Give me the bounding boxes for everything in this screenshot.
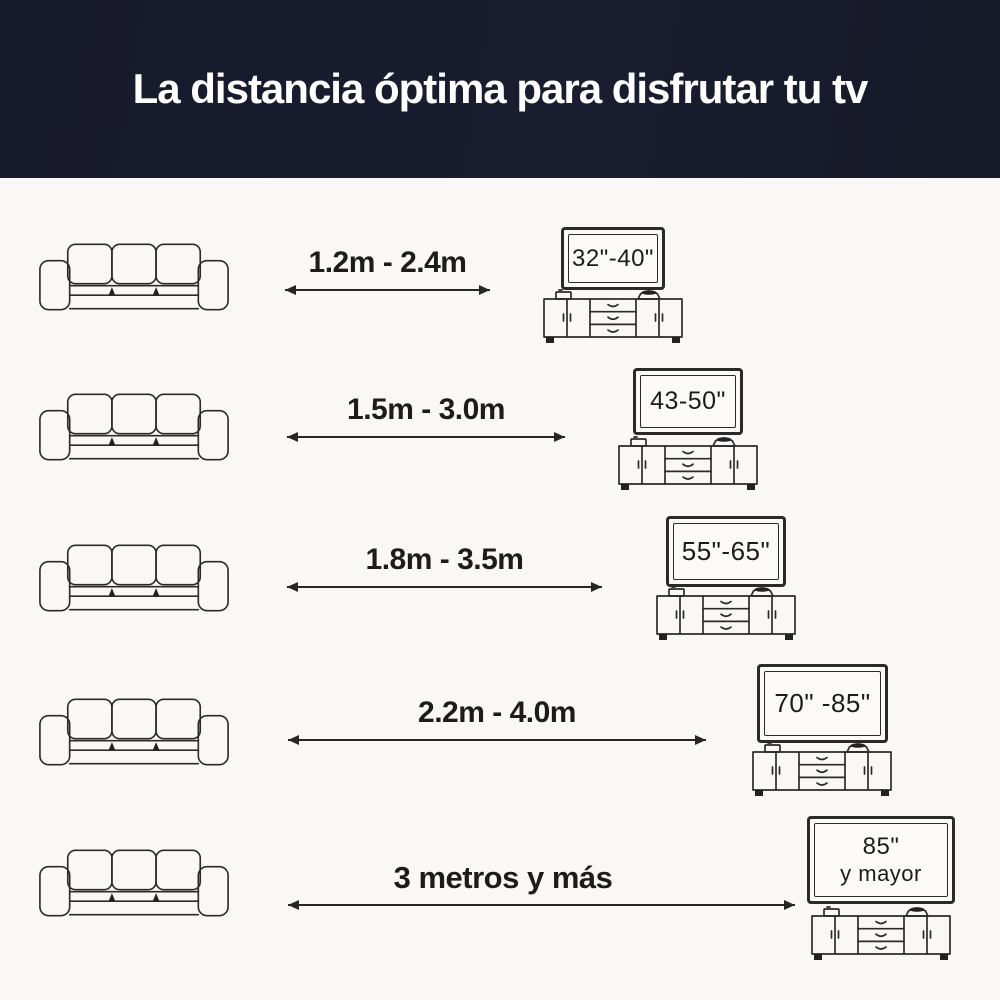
tv-stand-icon	[618, 436, 758, 496]
tv-screen-icon: 85" y mayor	[807, 816, 955, 904]
tv-stand-icon	[752, 742, 892, 802]
tv-screen-icon: 70" -85"	[757, 664, 888, 743]
distance-label: 1.5m - 3.0m	[287, 393, 565, 427]
double-headed-arrow-icon	[287, 436, 565, 438]
tv-stand-icon	[656, 586, 796, 646]
distance-label: 3 metros y más	[288, 861, 718, 895]
tv-size-label: 70" -85"	[774, 690, 870, 717]
double-headed-arrow-icon	[288, 904, 795, 906]
distance-label: 2.2m - 4.0m	[288, 696, 706, 730]
tv-stand-icon	[811, 906, 951, 966]
page-title: La distancia óptima para disfrutar tu tv	[133, 65, 868, 113]
double-headed-arrow-icon	[287, 586, 602, 588]
tv-stand-icon	[543, 289, 683, 349]
sofa-icon	[38, 543, 230, 613]
distance-label: 1.8m - 3.5m	[287, 543, 602, 577]
tv-size-line2: y mayor	[840, 860, 922, 887]
sofa-icon	[38, 242, 230, 312]
tv-screen-icon: 55"-65"	[666, 516, 786, 587]
sofa-icon	[38, 392, 230, 462]
sofa-icon	[38, 848, 230, 918]
infographic-tv-distance: La distancia óptima para disfrutar tu tv…	[0, 0, 1000, 1000]
tv-size-label: 85" y mayor	[840, 833, 922, 887]
tv-size-line1: 85"	[863, 833, 900, 860]
double-headed-arrow-icon	[285, 289, 490, 291]
tv-size-label: 55"-65"	[682, 538, 770, 565]
distance-label: 1.2m - 2.4m	[285, 246, 490, 280]
tv-screen-icon: 43-50"	[633, 368, 743, 435]
tv-size-label: 43-50"	[650, 388, 726, 415]
sofa-icon	[38, 697, 230, 767]
tv-size-label: 32"-40"	[572, 245, 654, 272]
double-headed-arrow-icon	[288, 739, 706, 741]
header-banner: La distancia óptima para disfrutar tu tv	[0, 0, 1000, 178]
tv-screen-icon: 32"-40"	[561, 227, 665, 290]
